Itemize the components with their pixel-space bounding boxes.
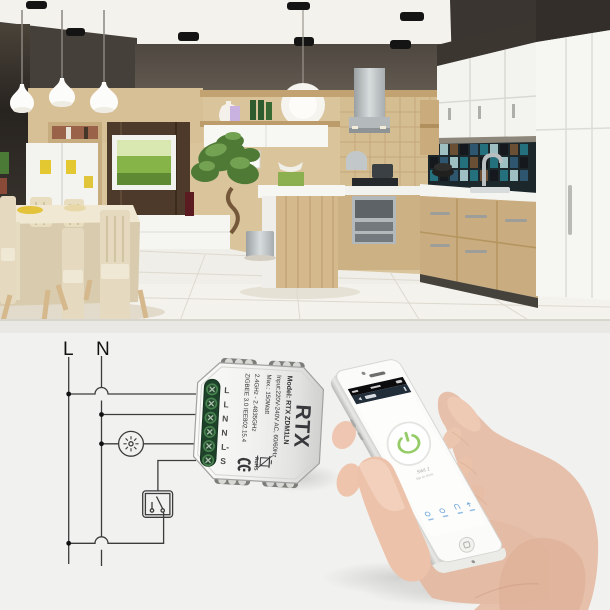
svg-text:L-: L- [221, 442, 230, 452]
svg-text:S: S [220, 456, 227, 466]
svg-text:N: N [221, 428, 228, 438]
svg-text:L: L [63, 339, 74, 360]
svg-text:L: L [223, 399, 229, 409]
svg-text:N: N [222, 413, 229, 423]
svg-text:RTX: RTX [289, 404, 314, 449]
svg-text:N: N [96, 339, 110, 360]
svg-text:L: L [224, 385, 230, 395]
svg-text:RoHS: RoHS [252, 457, 259, 472]
